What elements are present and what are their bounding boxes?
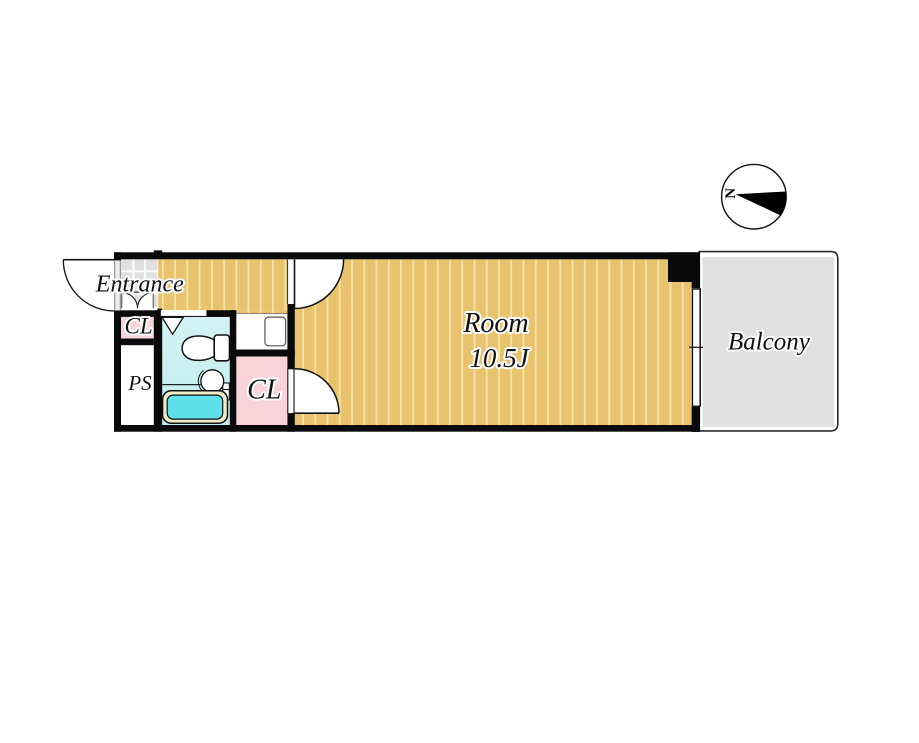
svg-text:PS: PS bbox=[127, 371, 152, 395]
svg-text:N: N bbox=[723, 188, 739, 199]
svg-text:CL: CL bbox=[247, 375, 281, 406]
svg-text:CL: CL bbox=[125, 314, 153, 339]
svg-text:Entrance: Entrance bbox=[95, 271, 184, 297]
svg-text:Balcony: Balcony bbox=[728, 328, 811, 355]
svg-text:Room: Room bbox=[462, 308, 528, 339]
svg-text:10.5J: 10.5J bbox=[469, 343, 530, 373]
